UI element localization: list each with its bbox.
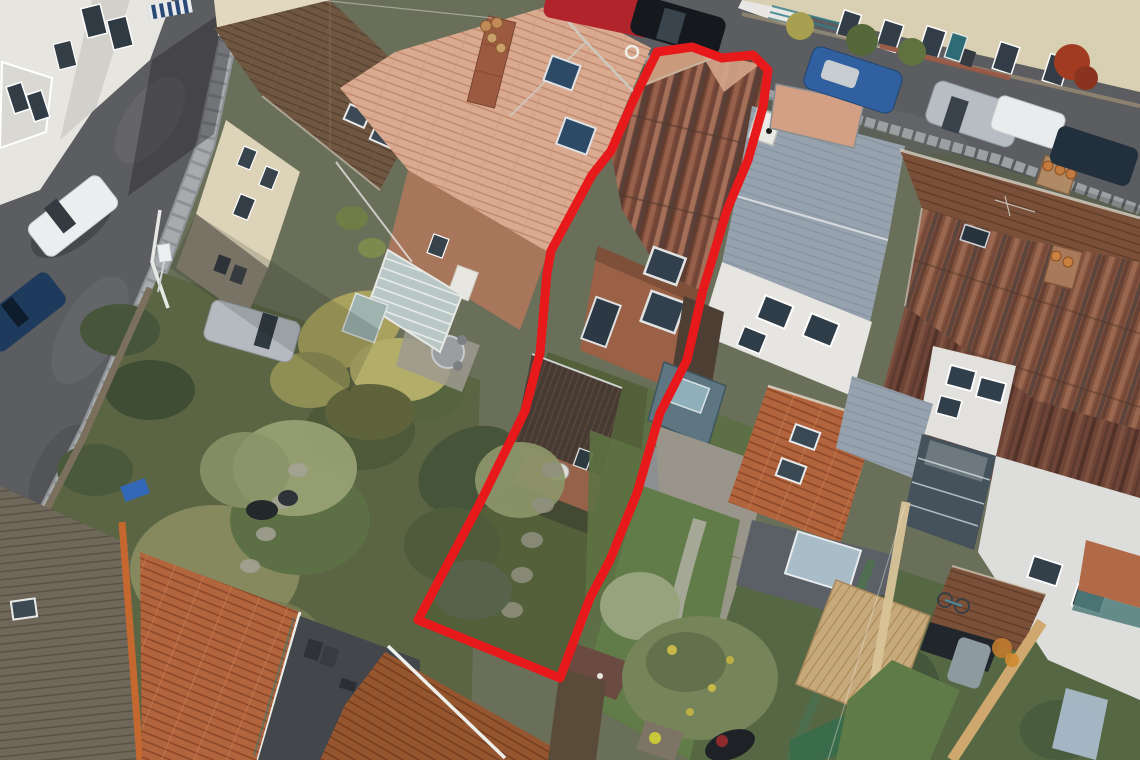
road-sign — [157, 243, 172, 263]
yellow-shrub — [786, 12, 814, 40]
yellow-fruit — [726, 656, 734, 664]
yellow-fruit — [686, 708, 694, 716]
shrub — [105, 360, 195, 420]
shrub — [846, 24, 878, 56]
garden-junk — [246, 500, 278, 520]
vine-shadow — [325, 384, 415, 440]
shrub — [898, 38, 926, 66]
garden-junk — [278, 490, 298, 506]
chimney-pot — [496, 43, 506, 53]
yellow-fruit — [708, 684, 716, 692]
balcony-plant — [336, 206, 368, 230]
white-cup — [597, 673, 603, 679]
chimney-pot — [1043, 161, 1053, 171]
red-leaved-bush — [1074, 66, 1098, 90]
yellow-ball — [649, 732, 661, 744]
yellow-fruit — [667, 645, 677, 655]
chimney-pot — [1051, 251, 1061, 261]
aerial-photo-canvas — [0, 0, 1140, 760]
cover-red-patch — [716, 735, 728, 747]
tree-shadow-core — [646, 632, 726, 692]
chimney-pot — [1063, 257, 1073, 267]
chimney-pot — [481, 21, 492, 32]
chimney-pot — [492, 18, 503, 29]
aerial-photo — [0, 0, 1140, 760]
roof-skylight — [11, 598, 37, 619]
balcony-plant — [358, 238, 386, 258]
chimney-pot — [487, 33, 497, 43]
patio-chair — [457, 335, 467, 345]
patio-chair — [453, 361, 463, 371]
orange-flowers — [1005, 653, 1019, 667]
